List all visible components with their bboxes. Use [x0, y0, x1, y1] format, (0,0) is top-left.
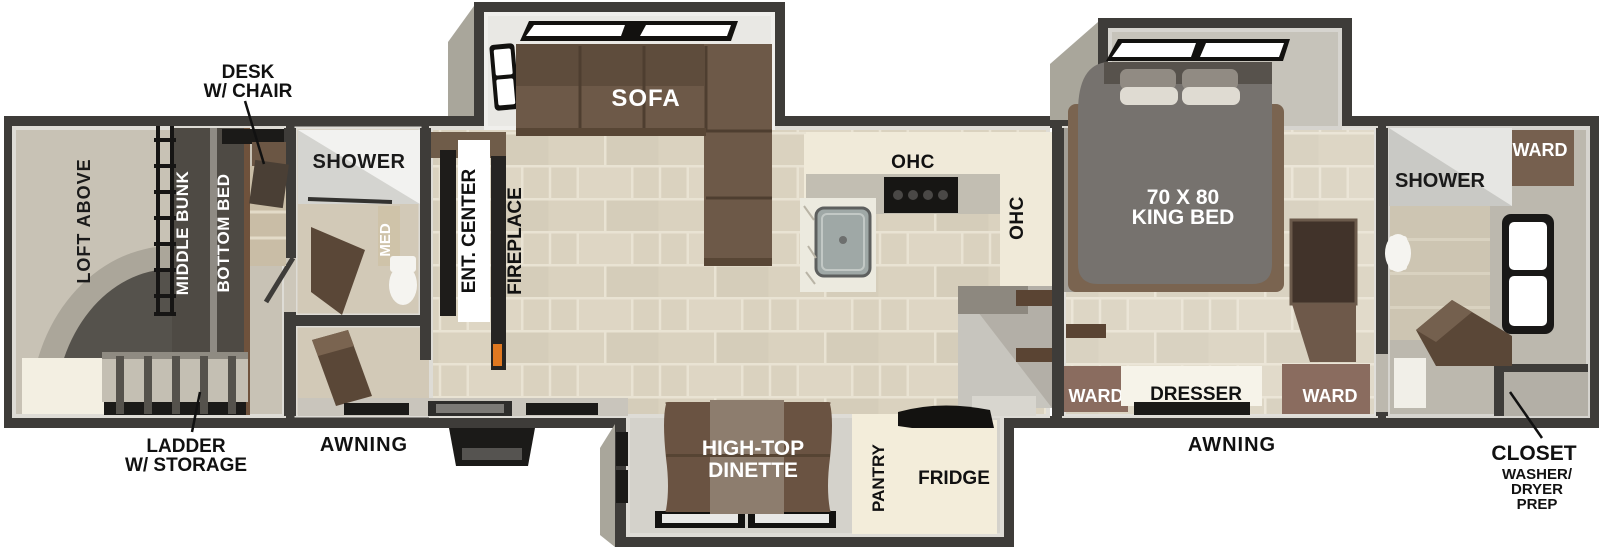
- svg-text:MIDDLE BUNK: MIDDLE BUNK: [173, 171, 192, 296]
- svg-text:PANTRY: PANTRY: [869, 443, 888, 512]
- svg-text:WARD: WARD: [1069, 386, 1124, 406]
- svg-text:AWNING: AWNING: [320, 434, 408, 456]
- svg-text:DRESSER: DRESSER: [1150, 384, 1242, 405]
- svg-text:ENT. CENTER: ENT. CENTER: [459, 168, 480, 293]
- svg-text:DESK: DESK: [222, 62, 275, 83]
- svg-text:DINETTE: DINETTE: [708, 459, 798, 482]
- svg-text:FRIDGE: FRIDGE: [918, 468, 990, 489]
- svg-text:LOFT ABOVE: LOFT ABOVE: [74, 158, 94, 283]
- svg-text:PREP: PREP: [1517, 496, 1558, 513]
- svg-text:OHC: OHC: [1007, 196, 1028, 240]
- svg-text:SHOWER: SHOWER: [1395, 170, 1486, 192]
- svg-text:BOTTOM BED: BOTTOM BED: [214, 174, 233, 293]
- svg-text:SHOWER: SHOWER: [313, 151, 406, 173]
- svg-text:WARD: WARD: [1513, 140, 1568, 160]
- svg-text:KING BED: KING BED: [1132, 206, 1235, 229]
- svg-text:OHC: OHC: [891, 152, 935, 173]
- svg-text:FIREPLACE: FIREPLACE: [505, 187, 526, 295]
- svg-text:HIGH-TOP: HIGH-TOP: [702, 437, 804, 460]
- svg-text:W/ CHAIR: W/ CHAIR: [204, 81, 293, 102]
- svg-text:W/ STORAGE: W/ STORAGE: [125, 455, 247, 476]
- svg-text:MED: MED: [377, 223, 394, 257]
- svg-text:WARD: WARD: [1303, 386, 1358, 406]
- svg-text:AWNING: AWNING: [1188, 434, 1276, 456]
- svg-text:SOFA: SOFA: [611, 85, 680, 112]
- svg-text:LADDER: LADDER: [146, 436, 225, 457]
- svg-text:CLOSET: CLOSET: [1491, 442, 1576, 465]
